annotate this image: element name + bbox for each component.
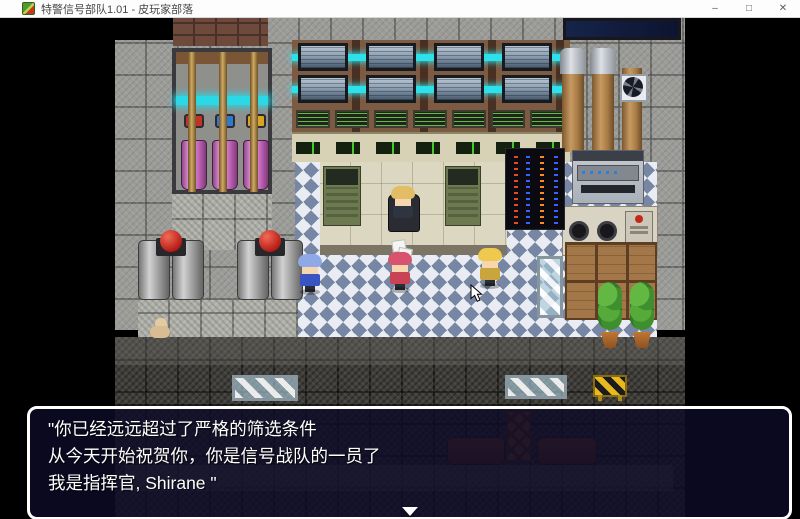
brass-pipe (250, 52, 258, 192)
potted-plant (596, 282, 624, 348)
minimize-button[interactable]: – (698, 0, 732, 17)
terminal-screen (530, 110, 564, 128)
character-face (302, 267, 318, 274)
terminal-screen (335, 110, 369, 128)
led-server-racks (505, 148, 565, 230)
copier-machine (572, 150, 644, 204)
machine-slot (630, 226, 648, 229)
game-app-icon (22, 2, 35, 15)
dialog-line-2: 从今天开始祝贺你，你是信号战队的一员了 (48, 443, 789, 470)
npc-pink-hair (388, 252, 412, 290)
red-button-boiler (138, 228, 204, 300)
character-hair (478, 248, 502, 261)
dialog-box[interactable]: "你已经远远超过了严格的筛选条件 从今天开始祝贺你，你是信号战队的一员了 我是指… (27, 406, 792, 519)
barricade (593, 375, 627, 397)
character-face (392, 265, 408, 272)
window-title: 特警信号部队1.01 - 皮玩家部落 (41, 1, 193, 17)
terminal-screen (452, 110, 486, 128)
game-viewport[interactable]: "你已经远远超过了严格的筛选条件 从今天开始祝贺你，你是信号战队的一员了 我是指… (0, 18, 800, 519)
copier-lid (573, 151, 643, 161)
mouse-cursor-icon (470, 284, 483, 308)
character-body (480, 268, 500, 280)
character-hair (298, 254, 322, 267)
continue-indicator-icon (402, 507, 418, 516)
character-shadow (390, 287, 410, 293)
led-column (554, 152, 558, 224)
fan-vent (620, 74, 648, 102)
tan-duct (592, 68, 614, 152)
brass-pipe (219, 52, 227, 192)
copier-slot (581, 185, 635, 193)
glass-display-table (505, 375, 567, 399)
panel-rows (326, 187, 358, 217)
plant-leaves (598, 282, 622, 330)
terminal-screen (374, 110, 408, 128)
app-window: 特警信号部队1.01 - 皮玩家部落 – □ ✕ (0, 0, 800, 519)
small-dog (150, 318, 172, 346)
character-shadow (480, 283, 500, 289)
glass-display-table (232, 375, 298, 401)
led-column (514, 152, 518, 224)
tan-duct (562, 68, 584, 152)
wall-monitor (434, 43, 484, 71)
npc-blonde (478, 248, 502, 286)
maximize-button[interactable]: □ (732, 0, 766, 17)
character-hair (388, 252, 412, 265)
wall-monitor (434, 75, 484, 103)
terminal-screen (413, 110, 447, 128)
plant-leaves (630, 282, 654, 330)
olive-control-panel (323, 166, 361, 226)
npc-blue-hair (298, 254, 322, 292)
character-shadow (300, 289, 320, 295)
cooking-pot (597, 221, 617, 241)
wall-monitor (366, 75, 416, 103)
big-red-button (160, 230, 182, 252)
character-body (390, 272, 410, 284)
led-column (526, 152, 530, 224)
glass-panel (537, 256, 563, 318)
character-body (393, 206, 413, 218)
plant-pot (633, 332, 651, 348)
wall-monitor (502, 75, 552, 103)
wall-monitor (502, 43, 552, 71)
dark-monitor (563, 18, 681, 40)
character-face (395, 199, 411, 206)
character-hair (391, 186, 415, 199)
panel-screen (326, 169, 358, 185)
wall-monitor (366, 43, 416, 71)
wall-monitor (298, 43, 348, 71)
plant-pot (601, 332, 619, 348)
panel-rows (448, 187, 478, 217)
dialog-line-1: "你已经远远超过了严格的筛选条件 (48, 416, 789, 443)
terminal-screen (296, 110, 330, 128)
big-red-button (259, 230, 281, 252)
machine-slot (630, 231, 648, 234)
window-controls: – □ ✕ (698, 0, 800, 17)
fan-blades (623, 77, 643, 97)
window-titlebar: 特警信号部队1.01 - 皮玩家部落 – □ ✕ (0, 0, 800, 18)
panel-screen (448, 169, 478, 185)
red-button-boiler (237, 228, 303, 300)
potted-plant (628, 282, 656, 348)
wall-monitor (298, 75, 348, 103)
dog-body (150, 326, 170, 338)
terminal-screen (491, 110, 525, 128)
copier-panel (577, 165, 639, 181)
close-button[interactable]: ✕ (766, 0, 800, 17)
led-column (540, 152, 544, 224)
duct-elbow (560, 48, 586, 74)
character-body (300, 274, 320, 286)
brick-chimney (173, 18, 268, 46)
commander-at-desk (391, 186, 415, 218)
ventilation-ducts (562, 48, 658, 152)
brass-pipe (188, 52, 196, 192)
duct-elbow (590, 48, 616, 74)
cooking-pot (569, 221, 589, 241)
server-monitor-wall (292, 40, 570, 162)
pink-coolant-tanks (172, 48, 272, 194)
olive-control-panel (445, 166, 481, 226)
red-indicator (635, 215, 643, 223)
character-face (482, 261, 498, 268)
dialog-line-3: 我是指挥官, Shirane " (48, 470, 789, 497)
